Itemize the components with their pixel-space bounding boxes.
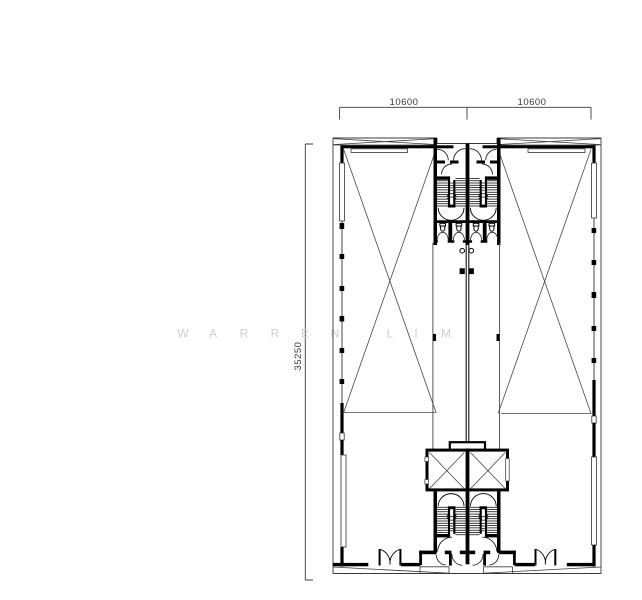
svg-text:L: L (387, 327, 394, 341)
svg-text:N: N (331, 327, 340, 341)
svg-text:R: R (271, 327, 280, 341)
svg-text:I: I (414, 327, 417, 341)
svg-text:M: M (441, 327, 451, 341)
svg-text:35250: 35250 (293, 342, 304, 371)
svg-text:W: W (177, 327, 189, 341)
svg-text:R: R (240, 327, 249, 341)
svg-text:E: E (301, 327, 309, 341)
svg-text:A: A (209, 327, 217, 341)
svg-text:10600: 10600 (518, 97, 547, 108)
svg-text:10600: 10600 (390, 97, 419, 108)
